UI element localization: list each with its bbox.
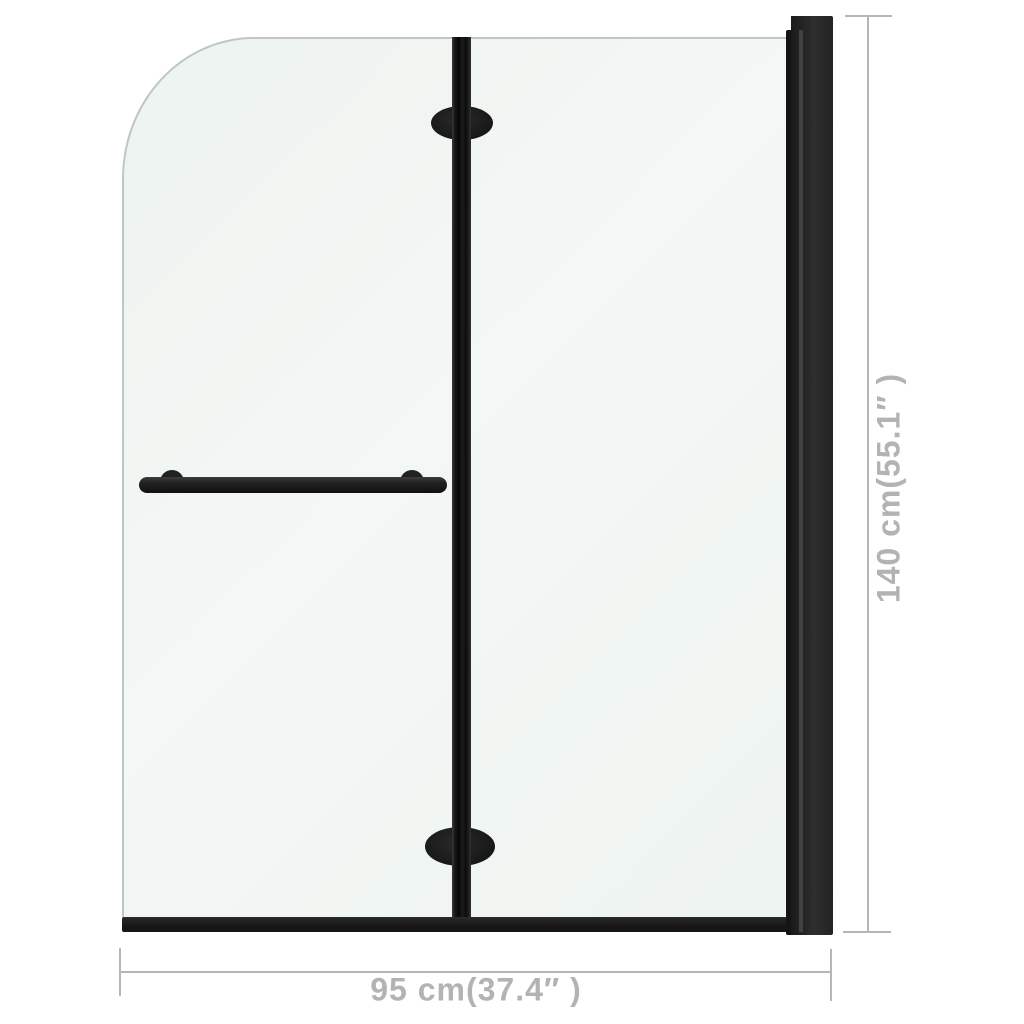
bottom-frame-bar [122, 917, 790, 932]
height-dimension-tick-top [845, 15, 892, 17]
fold-frame-bar [452, 37, 471, 932]
height-dimension-label: 140 cm(55.1″ ) [871, 373, 908, 603]
height-dimension-line [867, 17, 869, 932]
width-dimension-tick-right [830, 949, 832, 1001]
wall-mount-profile [791, 16, 833, 935]
width-dimension-label: 95 cm(37.4″ ) [370, 972, 582, 1009]
towel-bar [139, 477, 447, 493]
product-dimension-diagram: 140 cm(55.1″ ) 95 cm(37.4″ ) [0, 0, 1024, 1024]
wall-profile-highlight [799, 30, 803, 932]
width-dimension-tick-left [119, 948, 121, 996]
height-dimension-tick-bottom [843, 931, 891, 933]
